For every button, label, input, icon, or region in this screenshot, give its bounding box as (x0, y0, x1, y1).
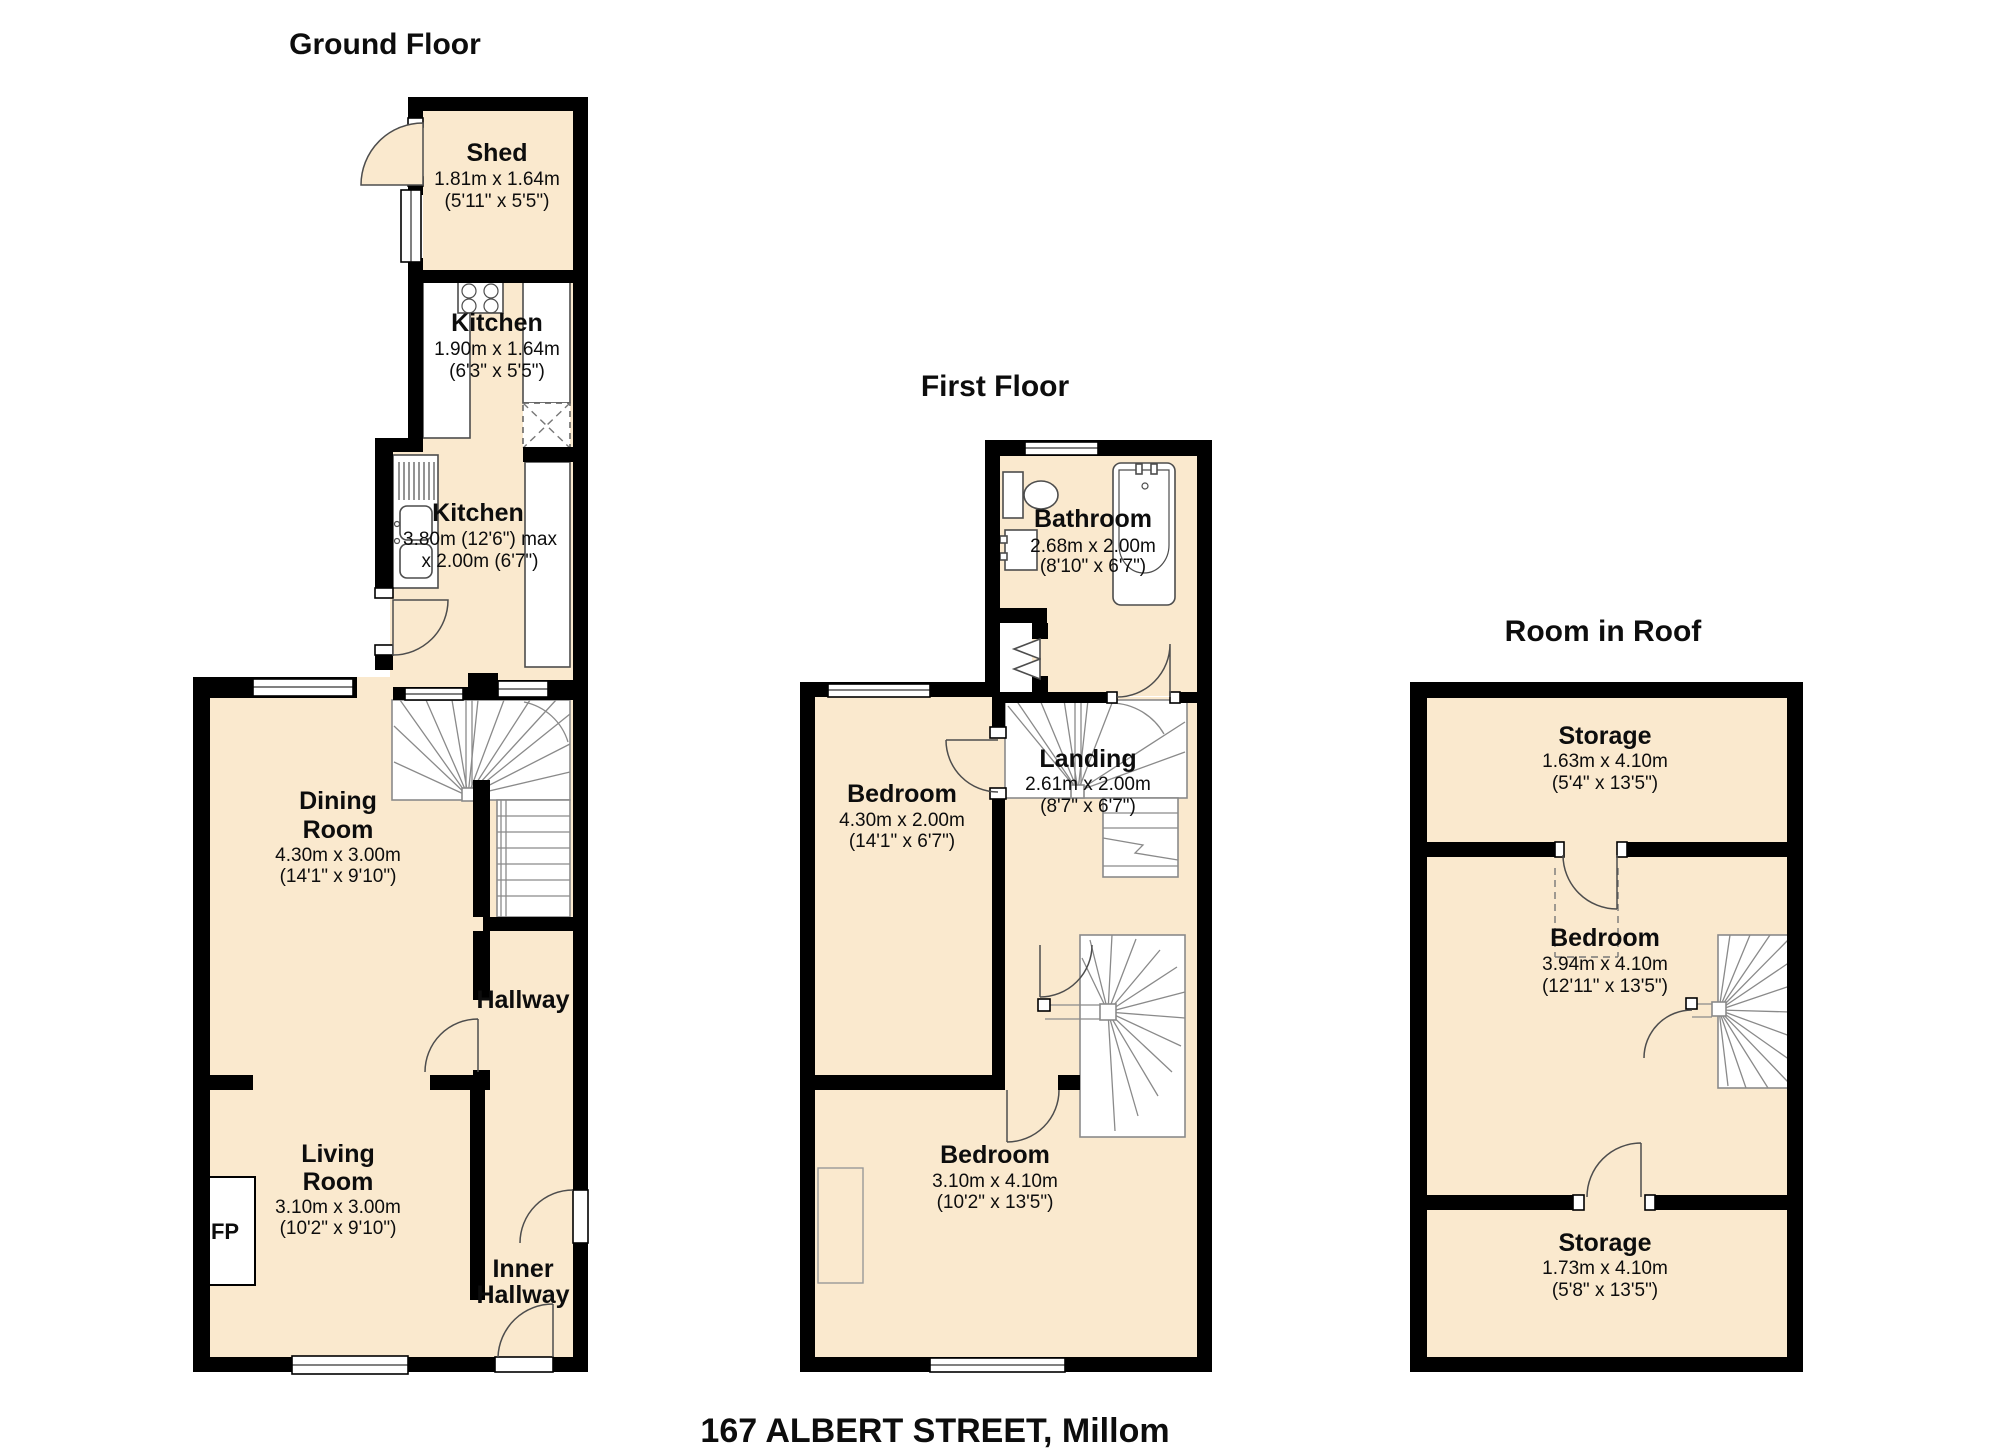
svg-text:2.68m x 2.00m: 2.68m x 2.00m (1030, 536, 1156, 557)
svg-text:(8'7" x 6'7"): (8'7" x 6'7") (1040, 796, 1136, 817)
svg-text:2.61m x 2.00m: 2.61m x 2.00m (1025, 774, 1151, 795)
svg-text:Storage: Storage (1558, 1229, 1651, 1257)
room-label-roof-bedroom: Bedroom 3.94m x 4.10m (12'11" x 13'5") (1542, 924, 1668, 997)
svg-text:Inner: Inner (492, 1255, 553, 1283)
window (930, 1358, 1065, 1372)
svg-text:Living: Living (301, 1140, 375, 1168)
room-label-bedroom-small: Bedroom 4.30m x 2.00m (14'1" x 6'7") (839, 780, 965, 852)
door-jamb (375, 588, 393, 598)
svg-text:(10'2" x 9'10"): (10'2" x 9'10") (280, 1218, 397, 1239)
svg-text:Kitchen: Kitchen (451, 309, 543, 337)
window (405, 688, 463, 700)
svg-text:4.30m x 2.00m: 4.30m x 2.00m (839, 810, 965, 831)
floorplan-page: Ground Floor (0, 0, 2000, 1455)
svg-text:(14'1" x 6'7"): (14'1" x 6'7") (849, 831, 955, 852)
address-title: 167 ALBERT STREET, Millom (700, 1412, 1169, 1450)
door-jamb (990, 788, 1006, 799)
door-jamb (990, 727, 1006, 738)
window (401, 190, 421, 262)
svg-text:(10'2" x 13'5"): (10'2" x 13'5") (937, 1192, 1054, 1213)
floorplan-drawing: Ground Floor (0, 0, 2000, 1455)
room-label-kitchen-top: Kitchen 1.90m x 1.64m (6'3" x 5'5") (434, 309, 560, 382)
bathtub-icon (1113, 463, 1175, 605)
svg-text:Hallway: Hallway (476, 986, 569, 1014)
appliance-space-icon (523, 403, 570, 448)
svg-text:Kitchen: Kitchen (432, 499, 524, 527)
room-in-roof-plan: Room in Roof (1410, 615, 1803, 1372)
door-opening (573, 1190, 588, 1243)
door-jamb (375, 645, 393, 655)
ground-floor-plan: Ground Floor (193, 28, 588, 1374)
svg-text:1.90m x 1.64m: 1.90m x 1.64m (434, 339, 560, 360)
door-jamb (1617, 842, 1627, 857)
room-in-roof-title: Room in Roof (1505, 615, 1703, 648)
door-arc (361, 123, 423, 185)
svg-text:3.10m x 3.00m: 3.10m x 3.00m (275, 1197, 401, 1218)
first-floor-title: First Floor (921, 370, 1070, 403)
svg-text:Hallway: Hallway (476, 1281, 569, 1309)
svg-text:3.94m x 4.10m: 3.94m x 4.10m (1542, 954, 1668, 975)
room-label-bedroom-large: Bedroom 3.10m x 4.10m (10'2" x 13'5") (932, 1141, 1058, 1213)
svg-text:(12'11" x 13'5"): (12'11" x 13'5") (1542, 976, 1668, 997)
svg-text:1.63m x 4.10m: 1.63m x 4.10m (1542, 751, 1668, 772)
svg-text:1.81m x 1.64m: 1.81m x 1.64m (434, 169, 560, 190)
window (253, 679, 353, 696)
ground-floor-title: Ground Floor (289, 28, 481, 61)
svg-text:3.10m x 4.10m: 3.10m x 4.10m (932, 1171, 1058, 1192)
svg-text:3.80m (12'6") max: 3.80m (12'6") max (403, 529, 557, 550)
door-opening (495, 1357, 553, 1372)
svg-text:Shed: Shed (466, 139, 527, 167)
svg-text:(8'10" x 6'7"): (8'10" x 6'7") (1040, 556, 1146, 577)
svg-text:(14'1" x 9'10"): (14'1" x 9'10") (280, 866, 397, 887)
svg-text:(5'4" x 13'5"): (5'4" x 13'5") (1552, 773, 1658, 794)
svg-text:x 2.00m (6'7"): x 2.00m (6'7") (421, 551, 538, 572)
svg-text:Storage: Storage (1558, 722, 1651, 750)
window (828, 684, 930, 697)
room-label-storage-top: Storage 1.63m x 4.10m (5'4" x 13'5") (1542, 722, 1668, 794)
room-label-bathroom: Bathroom 2.68m x 2.00m (8'10" x 6'7") (1030, 505, 1156, 577)
room-label-storage-bottom: Storage 1.73m x 4.10m (5'8" x 13'5") (1542, 1229, 1668, 1301)
fireplace-label: FP (211, 1219, 239, 1244)
door-jamb (1107, 692, 1117, 703)
svg-text:(5'8" x 13'5"): (5'8" x 13'5") (1552, 1280, 1658, 1301)
svg-text:Landing: Landing (1039, 745, 1136, 773)
svg-text:Bedroom: Bedroom (1550, 924, 1660, 952)
door-jamb (1573, 1195, 1584, 1210)
door-jamb (1170, 692, 1180, 703)
window (292, 1356, 408, 1374)
window (498, 681, 548, 697)
svg-text:Bedroom: Bedroom (940, 1141, 1050, 1169)
room-label-hallway: Hallway (476, 986, 569, 1014)
svg-text:Room: Room (303, 1168, 374, 1196)
svg-text:4.30m x 3.00m: 4.30m x 3.00m (275, 845, 401, 866)
door-jamb (1555, 842, 1564, 857)
svg-text:Room: Room (303, 816, 374, 844)
window (1025, 442, 1098, 455)
svg-text:Dining: Dining (299, 787, 377, 815)
svg-text:Bathroom: Bathroom (1034, 505, 1152, 533)
svg-text:Bedroom: Bedroom (847, 780, 957, 808)
room-label-landing: Landing 2.61m x 2.00m (8'7" x 6'7") (1025, 745, 1151, 817)
svg-text:1.73m x 4.10m: 1.73m x 4.10m (1542, 1258, 1668, 1279)
door-jamb (1645, 1195, 1655, 1210)
svg-text:(5'11" x 5'5"): (5'11" x 5'5") (445, 191, 550, 212)
svg-text:(6'3" x 5'5"): (6'3" x 5'5") (449, 361, 545, 382)
first-floor-plan: First Floor (800, 370, 1212, 1372)
